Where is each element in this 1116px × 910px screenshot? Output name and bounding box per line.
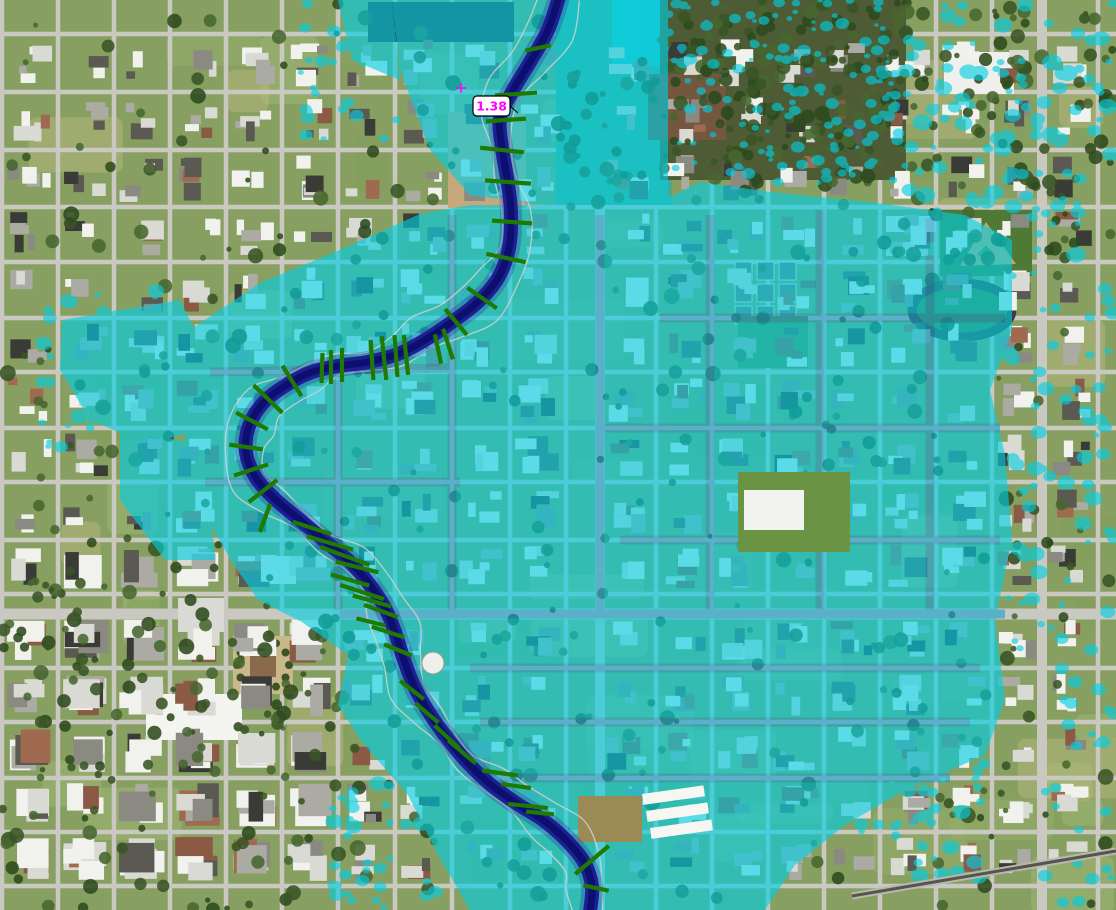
flood-map-canvas[interactable]: 1.38 [0, 0, 1116, 910]
map-viewport: 1.38 [0, 0, 1116, 910]
station-label-text: 1.38 [476, 99, 507, 114]
